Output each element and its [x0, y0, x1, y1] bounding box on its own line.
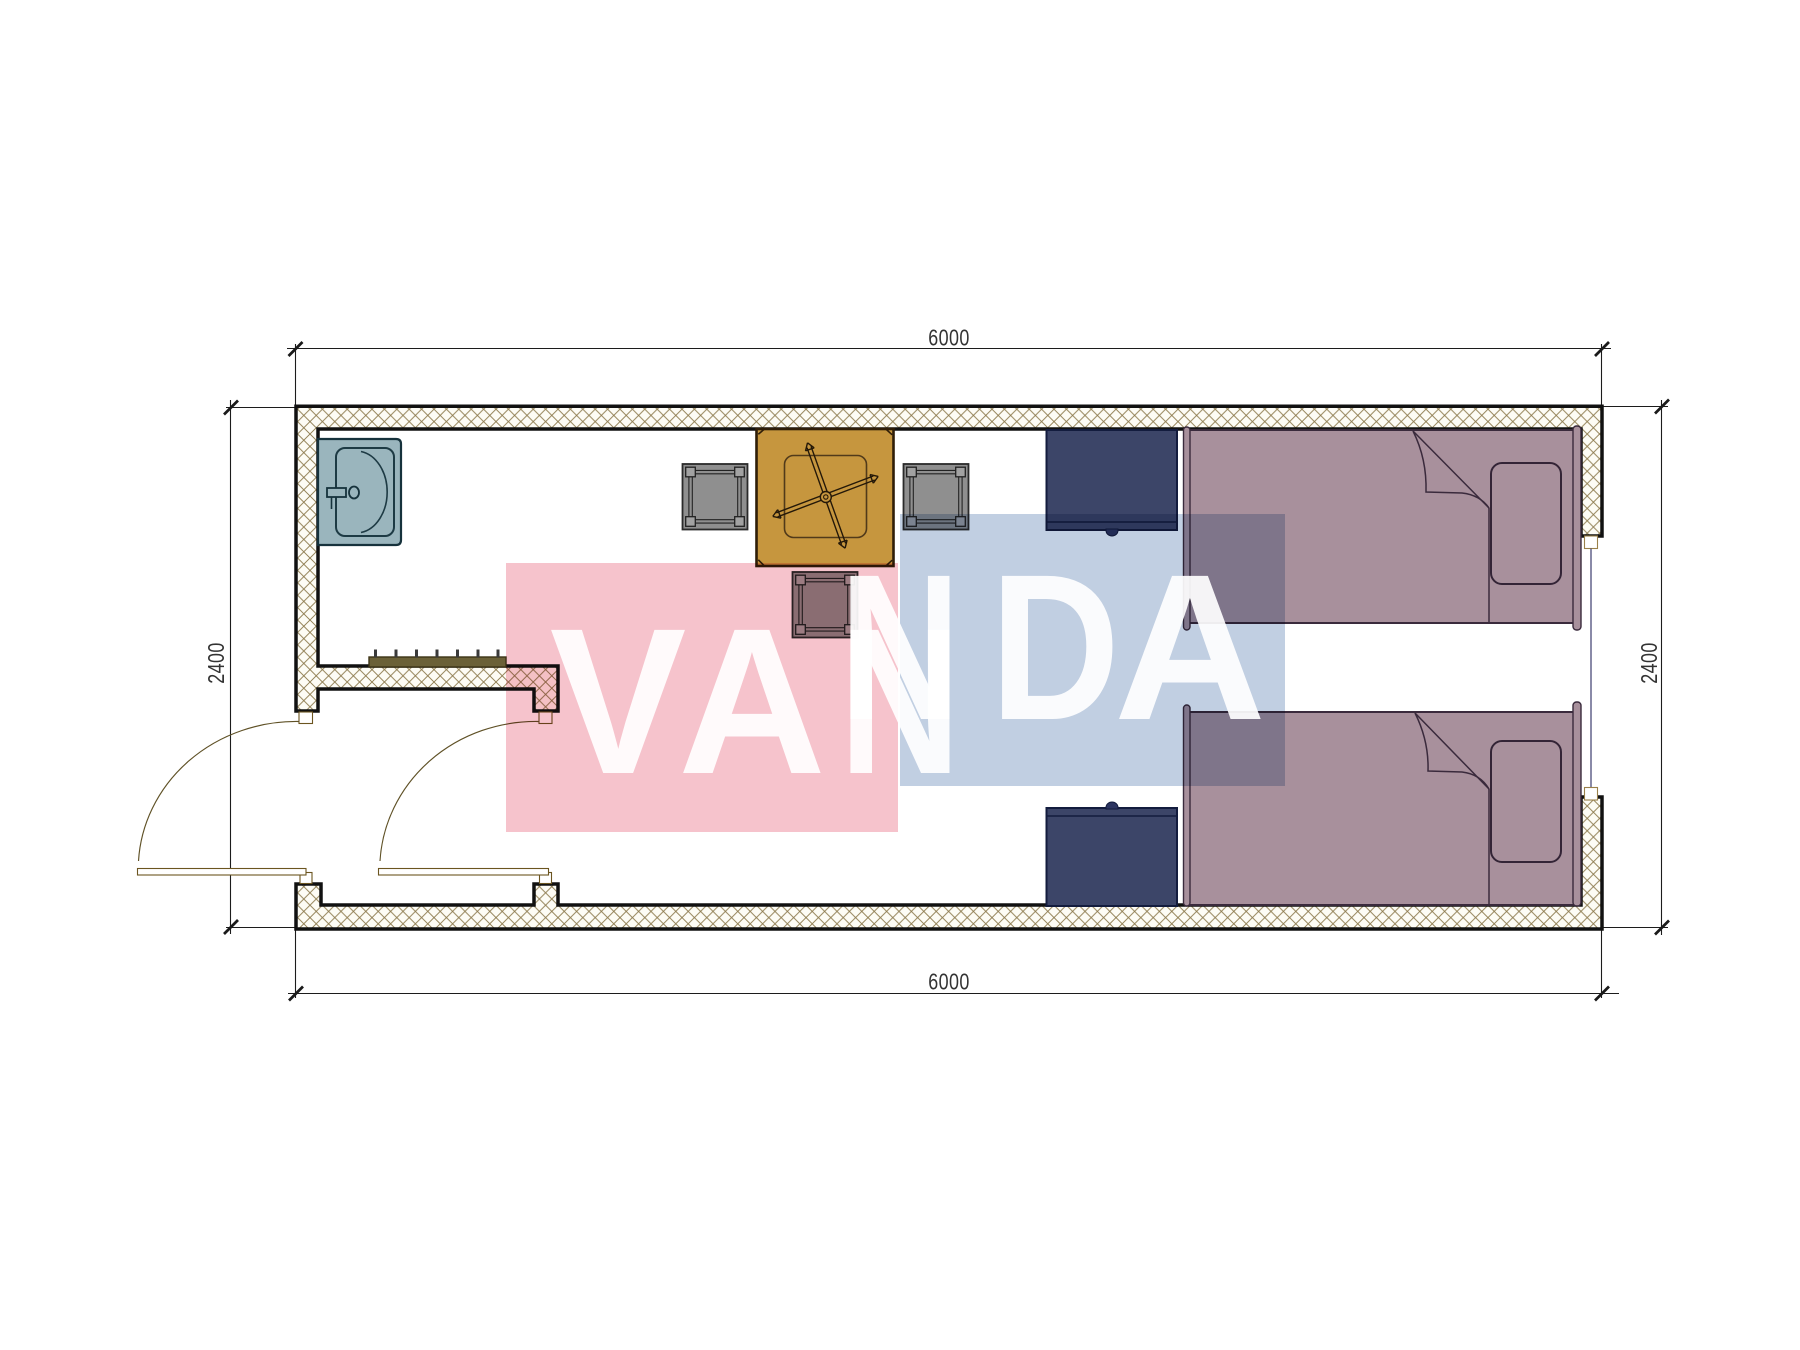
svg-text:A: A — [678, 585, 826, 818]
svg-text:A: A — [1114, 531, 1266, 763]
svg-text:V: V — [550, 585, 687, 818]
svg-text:D: D — [990, 532, 1120, 764]
svg-text:N: N — [839, 532, 961, 764]
